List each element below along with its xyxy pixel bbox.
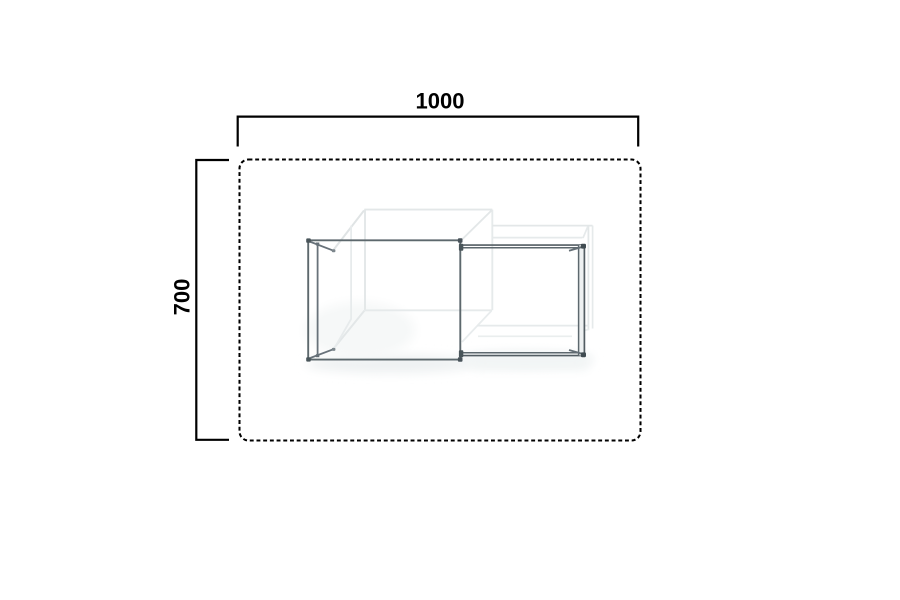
svg-text:1000: 1000 [416, 89, 465, 114]
svg-text:700: 700 [169, 279, 194, 316]
